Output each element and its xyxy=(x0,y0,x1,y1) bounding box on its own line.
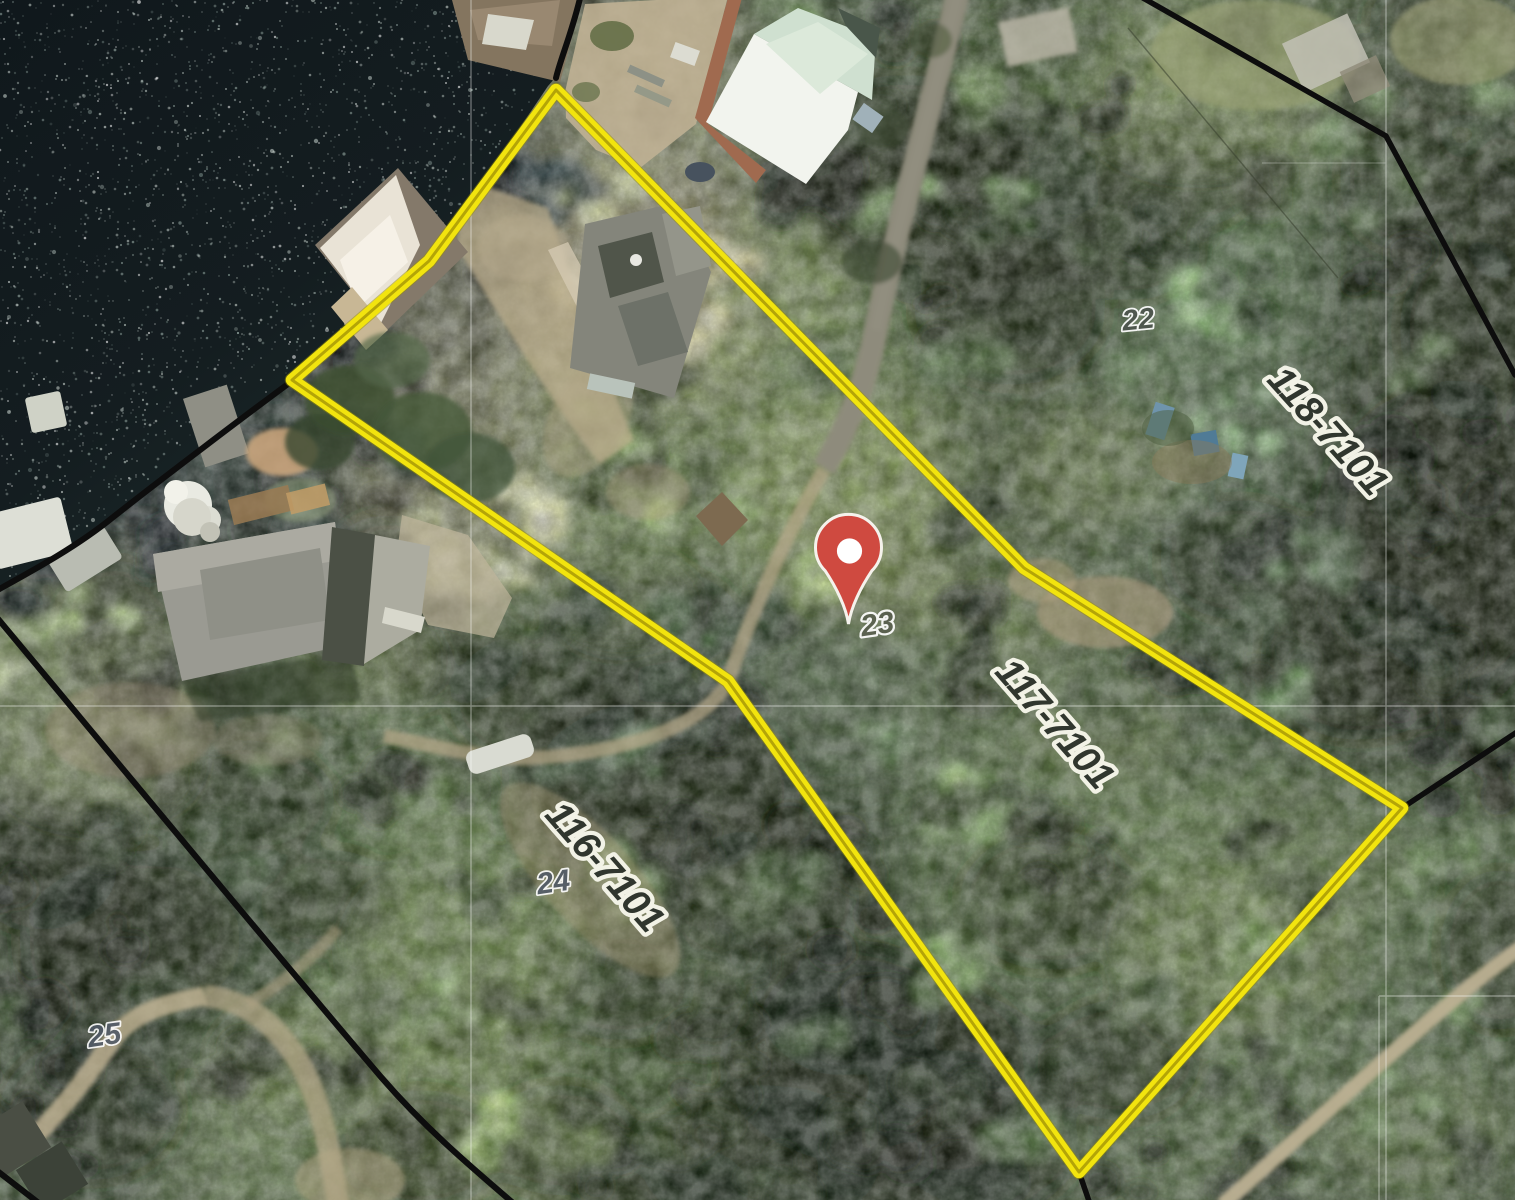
svg-text:25: 25 xyxy=(85,1017,125,1055)
svg-text:22: 22 xyxy=(1119,302,1155,337)
svg-text:24: 24 xyxy=(534,864,573,902)
svg-text:23: 23 xyxy=(858,606,897,644)
